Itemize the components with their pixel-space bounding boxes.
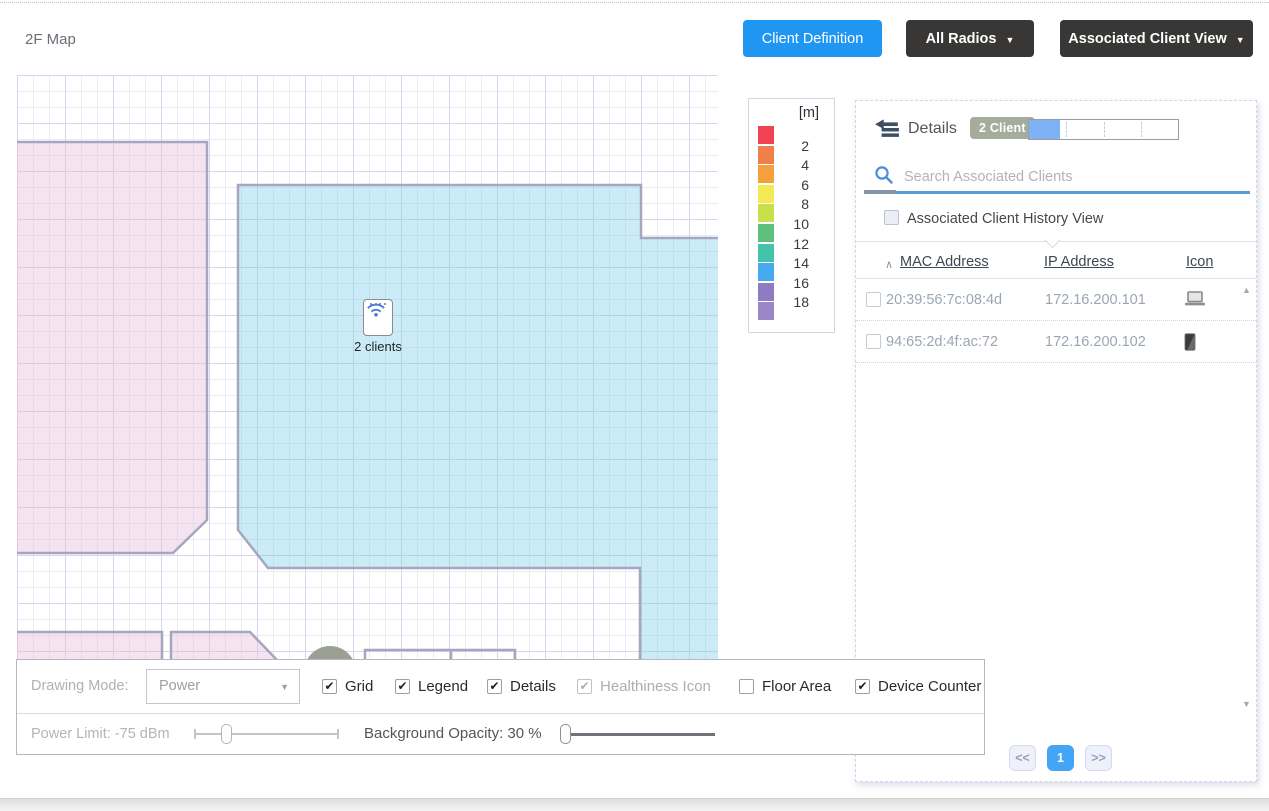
associated-client-view-label: Associated Client View (1068, 31, 1226, 47)
bottom-scrollbar-band[interactable] (0, 798, 1269, 811)
back-arrow-icon[interactable] (874, 118, 900, 138)
client-table-row[interactable]: 20:39:56:7c:08:4d172.16.200.101 (856, 279, 1256, 321)
checkbox-label: Legend (418, 678, 468, 695)
all-radios-dropdown-button[interactable]: All Radios ▼ (906, 20, 1034, 57)
search-underline-accent (864, 190, 896, 194)
power-limit-label: Power Limit: -75 dBm (31, 726, 170, 742)
legend-swatch (758, 244, 774, 262)
row-checkbox[interactable] (866, 292, 881, 307)
map-toolbar: Drawing Mode: Power ▼ ✔Grid✔Legend✔Detai… (16, 659, 985, 755)
search-icon (874, 165, 894, 185)
ap-client-count-label: 2 clients (333, 339, 423, 354)
power-limit-slider-handle[interactable] (221, 724, 232, 744)
toolbar-checkbox-device-counter[interactable]: ✔Device Counter (855, 678, 981, 695)
ip-address-cell: 172.16.200.101 (1045, 279, 1146, 321)
scroll-up-icon[interactable]: ▲ (1242, 285, 1251, 295)
legend-value-label: 18 (775, 293, 809, 311)
drawing-mode-label: Drawing Mode: (31, 678, 129, 694)
slider-end-tick (337, 729, 339, 739)
mac-address-cell: 94:65:2d:4f:ac:72 (886, 321, 998, 363)
toolbar-checkbox-grid[interactable]: ✔Grid (322, 678, 373, 695)
legend-swatch (758, 146, 774, 164)
legend-value-label: 12 (775, 235, 809, 253)
toolbar-checkbox-healthiness-icon[interactable]: ✔Healthiness Icon (577, 678, 711, 695)
map-legend: [m] 24681012141618 (748, 98, 835, 333)
client-definition-button[interactable]: Client Definition (743, 20, 882, 57)
checkbox-label: Details (510, 678, 556, 695)
legend-value-label: 14 (775, 254, 809, 272)
ip-address-cell: 172.16.200.102 (1045, 321, 1146, 363)
checkbox[interactable]: ✔ (487, 679, 502, 694)
chevron-down-icon: ▼ (1005, 35, 1014, 45)
checkbox-label: Grid (345, 678, 373, 695)
collapse-notch-icon[interactable] (1045, 233, 1061, 249)
laptop-icon (1184, 291, 1206, 312)
client-table-body: 20:39:56:7c:08:4d172.16.200.10194:65:2d:… (856, 279, 1256, 363)
power-limit-slider-track[interactable] (194, 733, 339, 735)
legend-swatch (758, 283, 774, 301)
wifi-icon (364, 300, 388, 318)
legend-value-label: 16 (775, 274, 809, 292)
select-caret-icon: ▼ (280, 682, 289, 692)
legend-swatch (758, 224, 774, 242)
legend-value-label: 4 (775, 156, 809, 174)
checkbox[interactable]: ✔ (577, 679, 592, 694)
checkbox-label: Device Counter (878, 678, 981, 695)
scroll-down-icon[interactable]: ▼ (1242, 699, 1251, 709)
checkbox[interactable] (739, 679, 754, 694)
details-title: Details (908, 120, 957, 138)
legend-swatch (758, 165, 774, 183)
floor-map-shapes (17, 75, 718, 665)
row-checkbox[interactable] (866, 334, 881, 349)
history-view-checkbox[interactable] (884, 210, 899, 225)
background-opacity-slider-handle[interactable] (560, 724, 571, 744)
background-opacity-label: Background Opacity: 30 % (364, 725, 542, 742)
floor-map: 2 clients (17, 75, 718, 665)
checkbox[interactable]: ✔ (855, 679, 870, 694)
access-point-icon[interactable] (363, 299, 393, 336)
legend-swatch (758, 263, 774, 281)
toolbar-checkbox-legend[interactable]: ✔Legend (395, 678, 468, 695)
column-header-icon[interactable]: Icon (1186, 254, 1213, 270)
search-input[interactable] (902, 164, 1226, 190)
slider-start-tick (194, 729, 196, 739)
coverage-region-pink-upper (17, 142, 207, 553)
legend-swatch (758, 302, 774, 320)
all-radios-label: All Radios (926, 31, 997, 47)
client-count-gauge (1028, 119, 1179, 140)
checkbox[interactable]: ✔ (395, 679, 410, 694)
column-header-mac-address[interactable]: MAC Address (900, 254, 989, 270)
legend-swatch (758, 204, 774, 222)
column-header-ip-address[interactable]: IP Address (1044, 254, 1114, 270)
sort-asc-icon[interactable]: ∧ (885, 258, 893, 271)
client-count-gauge-fill (1029, 120, 1060, 139)
drawing-mode-select[interactable]: Power ▼ (146, 669, 300, 704)
legend-swatch (758, 126, 774, 144)
toolbar-divider (17, 713, 984, 714)
legend-swatch (758, 185, 774, 203)
pagination-next-button[interactable]: >> (1085, 745, 1112, 771)
legend-value-label: 6 (775, 176, 809, 194)
toolbar-checkbox-details[interactable]: ✔Details (487, 678, 556, 695)
pagination-prev-button[interactable]: << (1009, 745, 1036, 771)
checkbox-label: Healthiness Icon (600, 678, 711, 695)
coverage-region-blue (238, 185, 718, 665)
legend-value-label: 8 (775, 195, 809, 213)
client-count-badge: 2 Client (970, 117, 1035, 139)
checkbox[interactable]: ✔ (322, 679, 337, 694)
pagination-page-1-button[interactable]: 1 (1047, 745, 1074, 771)
history-view-label: Associated Client History View (907, 211, 1103, 227)
chevron-down-icon: ▼ (1236, 35, 1245, 45)
page-top-border (0, 2, 1269, 3)
mac-address-cell: 20:39:56:7c:08:4d (886, 279, 1002, 321)
page-title: 2F Map (25, 31, 76, 48)
smartphone-icon (1184, 333, 1196, 356)
legend-value-label: 10 (775, 215, 809, 233)
associated-client-view-dropdown-button[interactable]: Associated Client View ▼ (1060, 20, 1253, 57)
client-table-row[interactable]: 94:65:2d:4f:ac:72172.16.200.102 (856, 321, 1256, 363)
toolbar-checkbox-floor-area[interactable]: Floor Area (739, 678, 831, 695)
search-underline (864, 191, 1250, 194)
client-definition-label: Client Definition (762, 31, 864, 47)
legend-value-label: 2 (775, 137, 809, 155)
drawing-mode-value: Power (159, 678, 200, 694)
legend-unit-label: [m] (799, 105, 819, 121)
background-opacity-slider-track[interactable] (570, 733, 715, 736)
checkbox-label: Floor Area (762, 678, 831, 695)
